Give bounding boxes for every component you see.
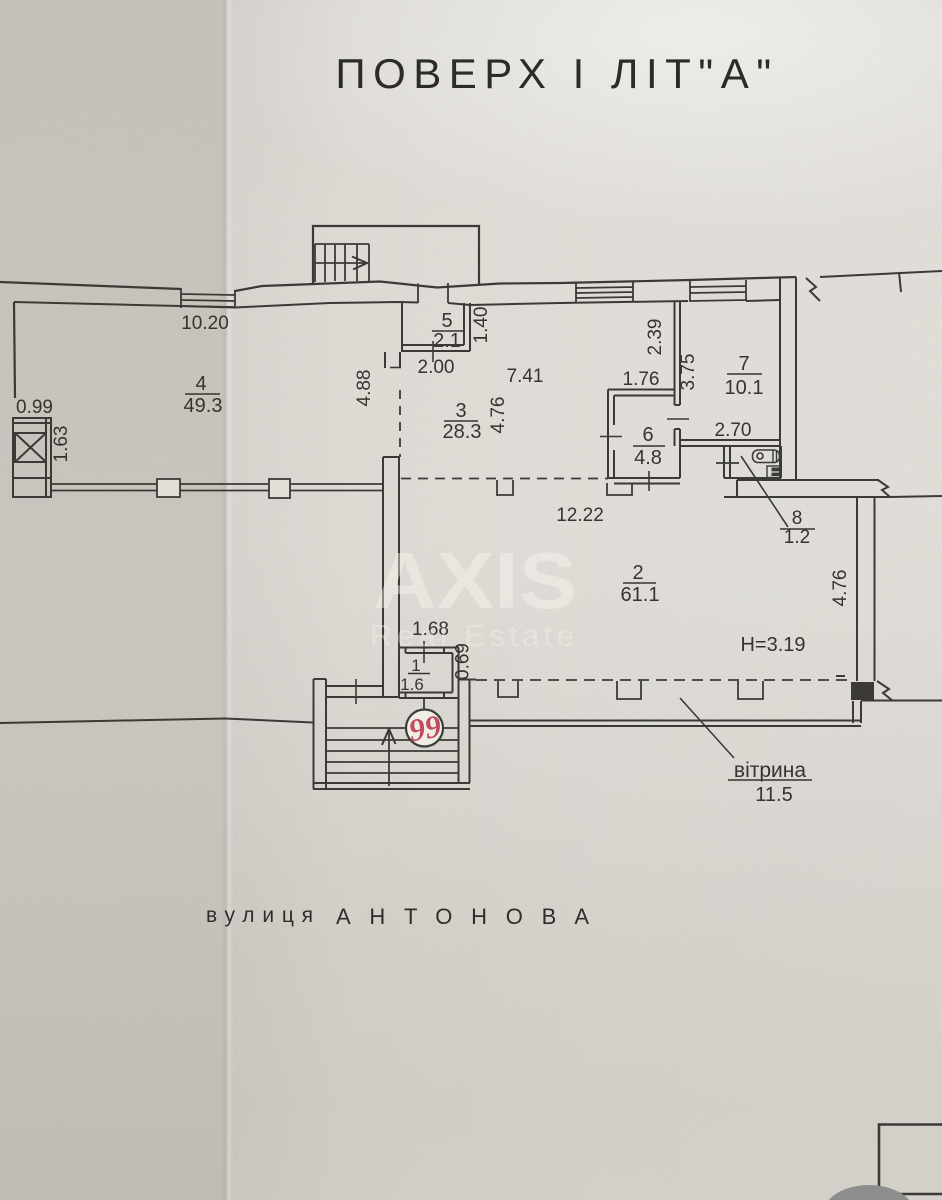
svg-text:1.40: 1.40 — [471, 307, 492, 344]
svg-text:10.20: 10.20 — [181, 313, 229, 334]
svg-text:2.39: 2.39 — [645, 319, 666, 356]
svg-text:6: 6 — [642, 424, 653, 446]
svg-text:H=3.19: H=3.19 — [740, 634, 805, 656]
svg-text:0.99: 0.99 — [16, 397, 53, 418]
svg-text:2.1: 2.1 — [433, 330, 461, 352]
svg-text:28.3: 28.3 — [443, 421, 482, 443]
svg-text:11.5: 11.5 — [755, 784, 792, 806]
svg-text:1.6: 1.6 — [400, 675, 424, 694]
svg-text:1.76: 1.76 — [623, 369, 660, 390]
svg-text:49.3: 49.3 — [184, 395, 223, 417]
svg-text:вітрина: вітрина — [734, 759, 806, 782]
svg-text:10.1: 10.1 — [725, 377, 764, 399]
svg-text:1: 1 — [411, 656, 420, 675]
svg-text:8: 8 — [792, 508, 803, 529]
svg-text:2: 2 — [632, 562, 643, 584]
svg-text:4.88: 4.88 — [354, 370, 375, 407]
svg-text:61.1: 61.1 — [621, 584, 660, 606]
svg-text:7.41: 7.41 — [507, 366, 544, 387]
svg-text:4.8: 4.8 — [634, 447, 662, 469]
svg-text:4: 4 — [195, 373, 206, 395]
svg-text:1.2: 1.2 — [784, 527, 810, 548]
svg-text:4.76: 4.76 — [488, 397, 509, 434]
svg-text:ПОВЕРХ І ЛІТ"А": ПОВЕРХ І ЛІТ"А" — [335, 50, 778, 97]
svg-text:5: 5 — [441, 310, 452, 332]
svg-text:Real Estate: Real Estate — [370, 618, 574, 653]
svg-text:4.76: 4.76 — [830, 570, 851, 607]
svg-text:AXIS: AXIS — [373, 536, 577, 625]
svg-text:2.00: 2.00 — [418, 357, 455, 378]
svg-text:2.70: 2.70 — [715, 420, 752, 441]
svg-text:3: 3 — [455, 400, 466, 422]
svg-text:3.75: 3.75 — [678, 354, 699, 391]
svg-text:99: 99 — [406, 707, 444, 748]
svg-text:12.22: 12.22 — [556, 505, 604, 526]
svg-text:7: 7 — [738, 353, 749, 375]
svg-text:1.63: 1.63 — [51, 426, 72, 463]
